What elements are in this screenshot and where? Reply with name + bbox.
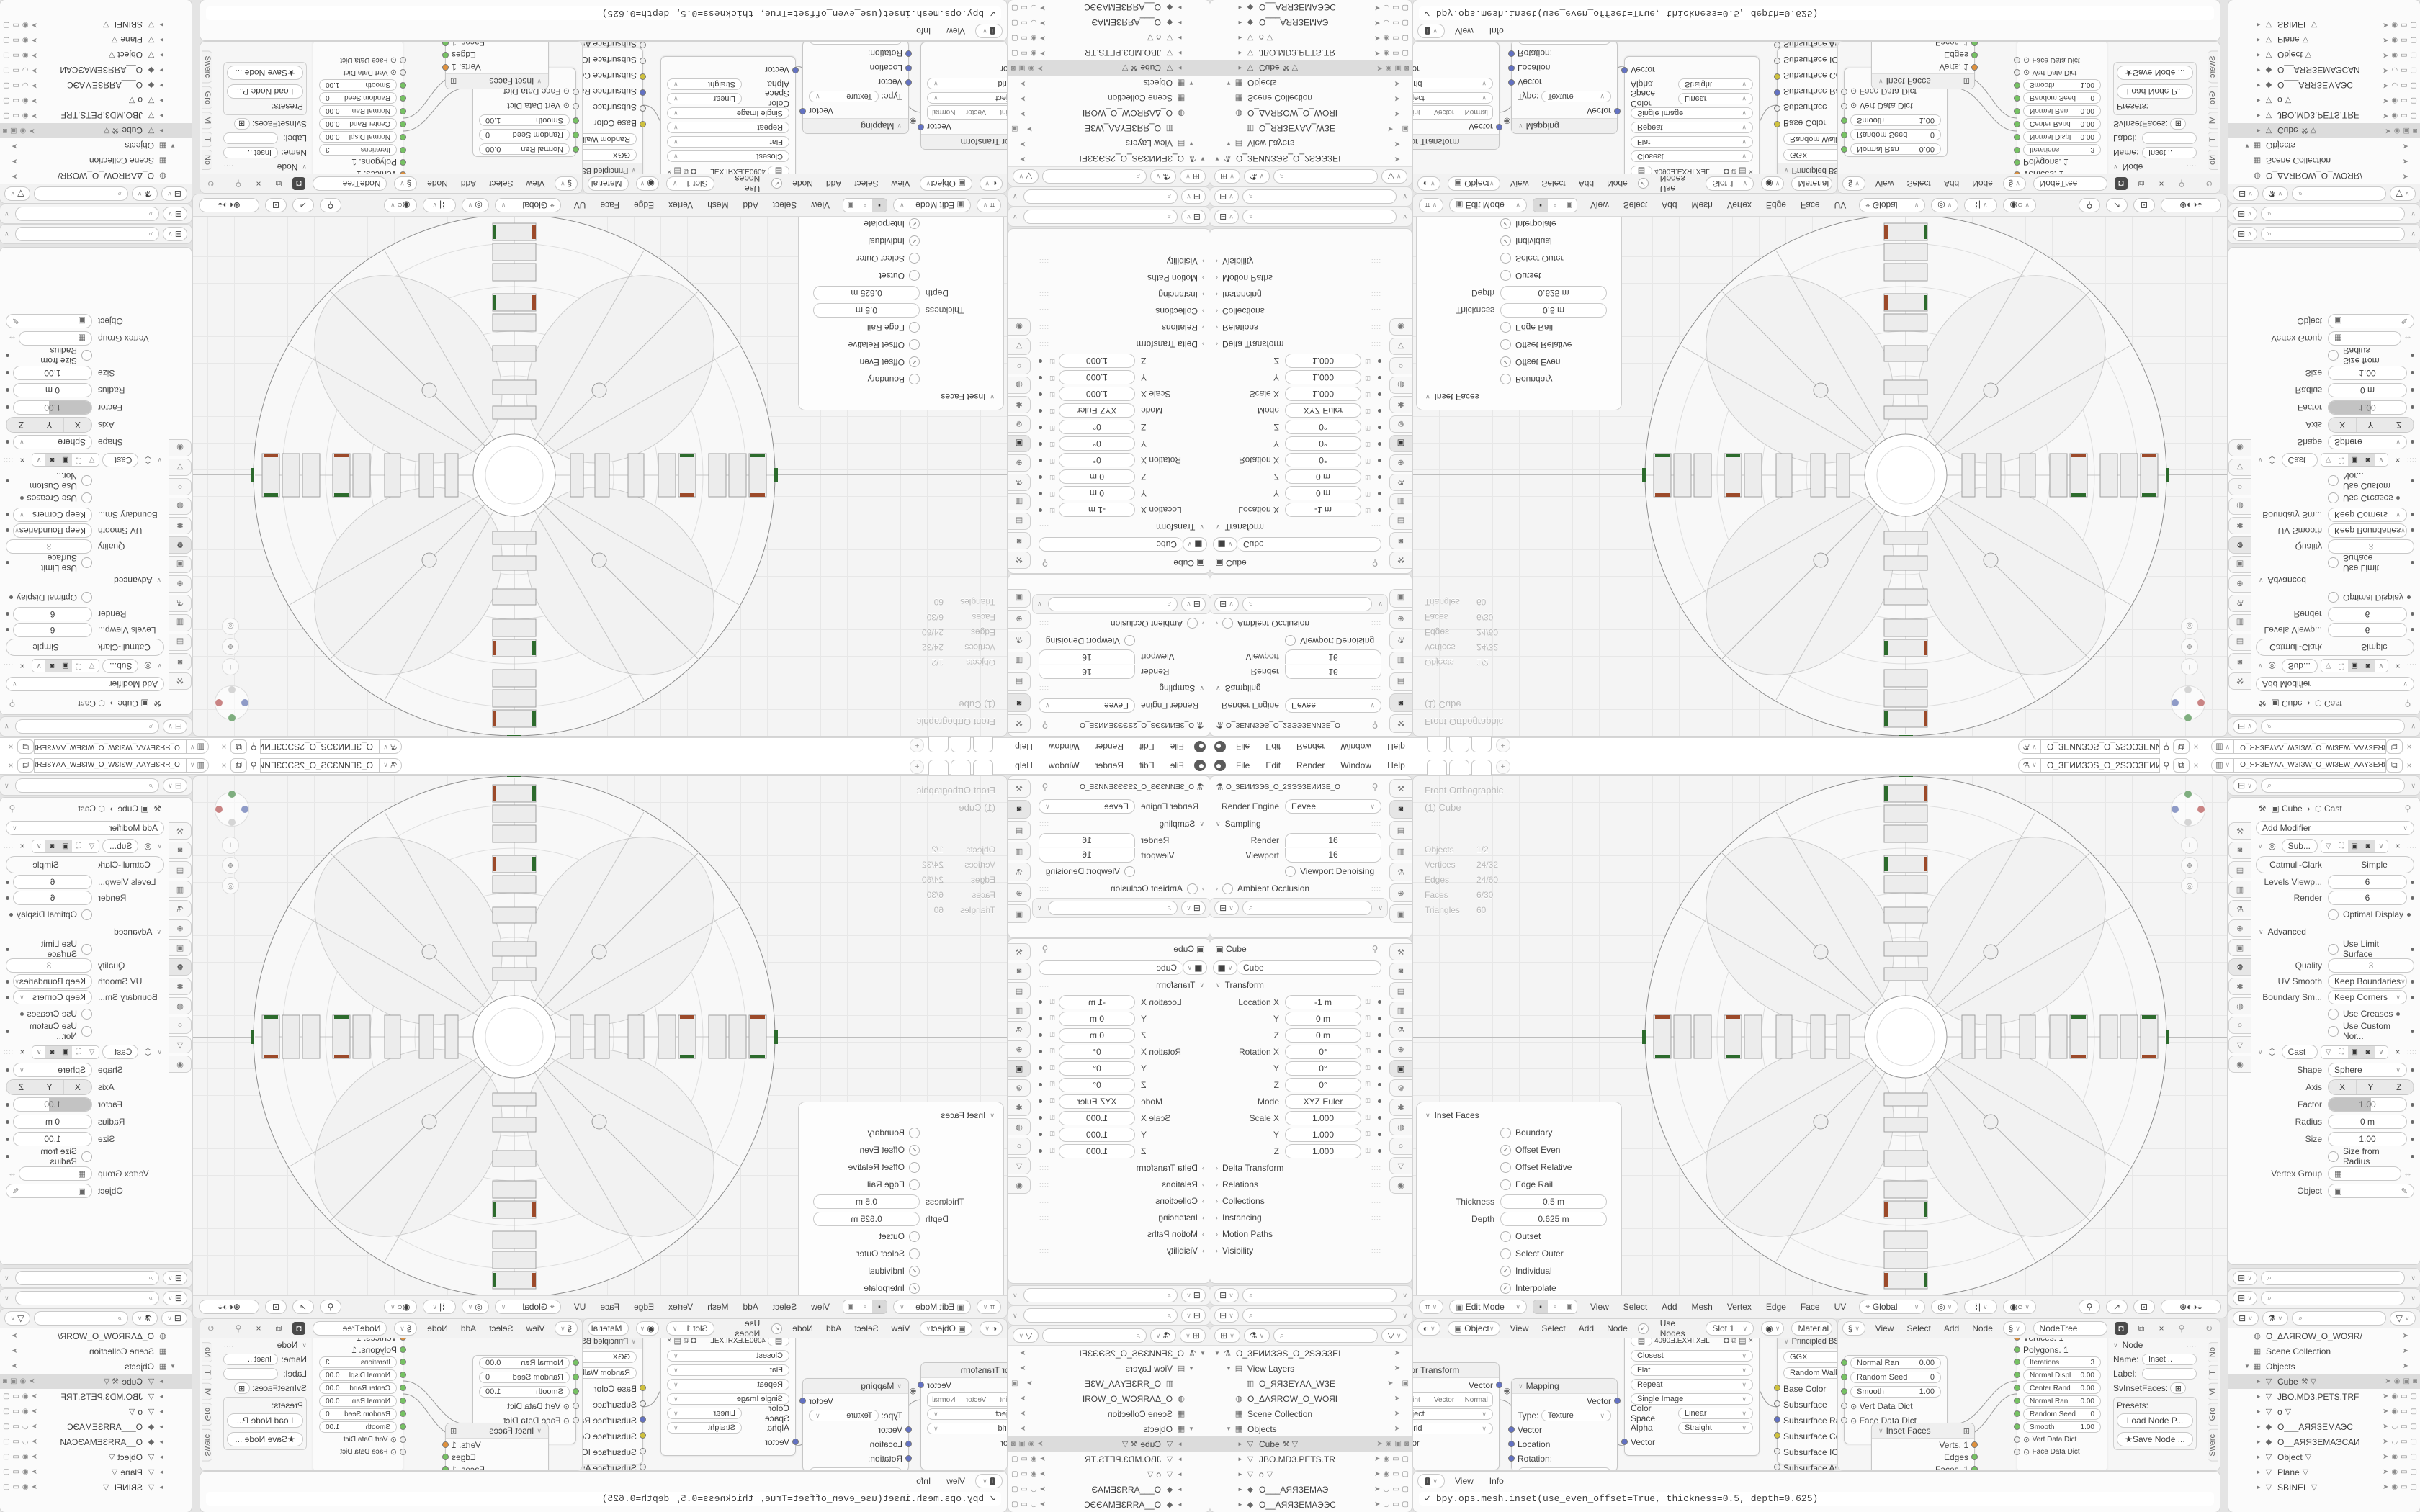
outliner-row[interactable]: ▼ ▤ View Layers ➤ bbox=[1008, 136, 1210, 151]
node-number-field[interactable]: Center Rand0.00 bbox=[319, 118, 397, 130]
topbar-menu-item[interactable]: Window bbox=[1046, 742, 1083, 752]
field-value[interactable]: 1.000 bbox=[1059, 387, 1135, 402]
animate-dot[interactable] bbox=[1039, 1116, 1042, 1120]
disable-viewport-icon[interactable]: ▭ bbox=[2401, 1423, 2407, 1431]
node-number-field[interactable]: Random Seed0 bbox=[2023, 92, 2101, 104]
outliner-row[interactable]: ► ▽ JBO.MD3.PETS.TRF ➤ ◉ ▭ ▢ bbox=[2228, 1389, 2420, 1404]
hide-eye-icon[interactable]: ◡ bbox=[2391, 66, 2398, 74]
node-tree-type-icon[interactable]: §∨ bbox=[555, 1321, 578, 1336]
field-value[interactable]: -1 m bbox=[1285, 503, 1361, 518]
animate-dot[interactable] bbox=[1378, 1000, 1381, 1004]
node-number-field[interactable]: Iterations3 bbox=[319, 1356, 397, 1368]
axis-option[interactable]: X bbox=[2329, 1080, 2357, 1094]
disable-render-icon[interactable]: ▢ bbox=[3, 1483, 9, 1491]
object-id-field[interactable]: Cube bbox=[1039, 537, 1183, 552]
select-arrow-icon[interactable]: ➤ bbox=[1020, 94, 1026, 102]
image-option-select[interactable]: Closest∨ bbox=[1631, 1350, 1753, 1362]
lock-icon[interactable]: ⚿ bbox=[1046, 1029, 1059, 1042]
disable-render-icon[interactable]: ▢ bbox=[1011, 19, 1018, 27]
outliner-row[interactable]: ▼ ⚗ O_ЗЕИИЗЭЅ_О_2ЅЭЭЗЕІ ➤ bbox=[1008, 151, 1210, 166]
hide-eye-icon[interactable]: ◉ bbox=[2391, 1468, 2398, 1476]
disable-render-icon[interactable]: ▢ bbox=[2411, 36, 2417, 44]
uv-smooth-select[interactable]: Keep Boundaries∨ bbox=[13, 974, 92, 989]
n-panel-tab[interactable]: Vi bbox=[2208, 1383, 2218, 1400]
properties-tab-icon[interactable]: ✱ bbox=[169, 978, 192, 995]
viewport-menu-item[interactable]: UV bbox=[1832, 1302, 1850, 1312]
size-from-radius-checkbox[interactable] bbox=[2328, 351, 2339, 361]
viewport-menu-item[interactable]: Edge bbox=[631, 1302, 657, 1312]
node-inset-faces[interactable]: ∨Inset Faces⊞ Verts. 1EdgesFaces. 1Face … bbox=[445, 1423, 549, 1470]
outliner-row[interactable]: ► ▽ Cube ⚒ ▽ ➤ ◉ ▣ ◙ bbox=[0, 1374, 192, 1389]
disable-render-icon[interactable]: ▢ bbox=[2411, 1392, 2417, 1400]
use-nodes-checkbox[interactable]: ✓ bbox=[1638, 1323, 1649, 1334]
select-arrow-icon[interactable]: ➤ bbox=[1394, 1349, 1400, 1357]
space-option[interactable]: Point bbox=[992, 1393, 1007, 1406]
outliner-item-label[interactable]: Object bbox=[2277, 1452, 2303, 1462]
space-option[interactable]: Point bbox=[992, 106, 1007, 119]
save-node-preset-button[interactable]: ★ Save Node ... bbox=[227, 1432, 303, 1446]
outliner-item-label[interactable]: Scene Collection bbox=[1247, 1409, 1312, 1419]
node-image-texture[interactable]: ▤ 4090Ǝ.EXЯI.XƎL ◘⧉▤× Closest∨Flat∨Repea… bbox=[1624, 1338, 1760, 1456]
disable-render-icon[interactable]: ▢ bbox=[2411, 1438, 2417, 1446]
outliner-item-label[interactable]: Plane bbox=[2277, 1467, 2300, 1477]
select-arrow-icon[interactable]: ➤ bbox=[2385, 127, 2390, 135]
select-arrow-icon[interactable]: ➤ bbox=[1020, 1425, 1026, 1433]
close-icon[interactable]: × bbox=[1749, 1338, 1753, 1345]
workspace-tab[interactable] bbox=[973, 738, 993, 753]
axis-z-dot[interactable] bbox=[2184, 791, 2192, 798]
outliner-row[interactable]: ▼ ▤ View Layers ➤ bbox=[1210, 1361, 1412, 1376]
outliner-search-input[interactable]: ⌕ bbox=[2292, 1311, 2386, 1326]
collapsed-section-row[interactable]: ›Visibility:::: bbox=[1033, 253, 1210, 270]
select-arrow-icon[interactable]: ➤ bbox=[1020, 1395, 1026, 1403]
hide-eye-icon[interactable]: ◉ bbox=[22, 21, 29, 29]
disable-viewport-icon[interactable]: ▭ bbox=[1021, 49, 1027, 57]
axis-option[interactable]: Y bbox=[2357, 1080, 2385, 1094]
properties-tab-icon[interactable]: ▽ bbox=[1008, 1157, 1031, 1174]
shader-menu-item[interactable]: Select bbox=[1538, 179, 1568, 189]
disable-render-icon[interactable]: ▢ bbox=[1402, 1500, 1409, 1508]
expand-arrow[interactable]: ► bbox=[2254, 22, 2263, 28]
delete-modifier-icon[interactable]: × bbox=[16, 840, 29, 852]
axis-option[interactable]: X bbox=[2329, 418, 2357, 432]
disable-render-icon[interactable]: ▢ bbox=[3, 51, 9, 59]
outliner-item-label[interactable]: View Layers bbox=[1126, 139, 1173, 149]
image-name-field[interactable]: 4090Ǝ.EXЯI.XƎL bbox=[1654, 168, 1722, 175]
view-layer-selector[interactable]: ▥∨ O_ЯЯЗЕYАΛ_WЗІЗW_О_WІЗЕW_ΛАYЗЕЯЯ_О ⧉ × bbox=[4, 740, 209, 755]
image-icon[interactable]: ▤ bbox=[768, 166, 789, 174]
workspace-tab[interactable] bbox=[928, 738, 949, 753]
expand-arrow[interactable]: ► bbox=[157, 1439, 166, 1445]
modifier-name-field[interactable]: Sub... bbox=[2282, 659, 2318, 673]
outliner-row[interactable]: ▥ O_ЯЯЗЕYАΛ_WЗЕ ➤ ▣ bbox=[1210, 121, 1412, 136]
show-gizmo-icon[interactable]: ⚲ bbox=[2079, 1300, 2100, 1314]
outliner-row[interactable]: ► ◆ O___АЯЯЗЕМАЭС ➤ ◡ ▭ ▢ bbox=[2228, 78, 2420, 93]
hide-eye-icon[interactable]: ◉ bbox=[1383, 34, 1389, 42]
image-option-select[interactable]: Repeat∨ bbox=[1631, 1379, 1753, 1390]
properties-tab-icon[interactable]: ▣ bbox=[1008, 904, 1031, 923]
use-limit-surface-checkbox[interactable] bbox=[81, 558, 92, 569]
node-mapping[interactable]: ∨Mapping Vector Type: Texture∨ Vector Lo… bbox=[1511, 42, 1618, 134]
grid-icon[interactable]: ⊞ bbox=[1963, 77, 1970, 86]
thickness-field[interactable]: 0.5 m bbox=[1500, 1194, 1607, 1209]
option-checkbox[interactable] bbox=[909, 271, 920, 282]
n-panel-tab[interactable]: No bbox=[2208, 1342, 2218, 1362]
convert-to-select[interactable]: World∨ bbox=[1413, 78, 1493, 89]
field-value[interactable]: 6 bbox=[13, 607, 92, 621]
expand-arrow[interactable]: ► bbox=[1236, 1441, 1245, 1447]
option-checkbox[interactable]: ✓ bbox=[1500, 219, 1511, 230]
colorspace-select[interactable]: Linear∨ bbox=[667, 1408, 742, 1419]
save-node-preset-button[interactable]: ★ Save Node ... bbox=[2117, 1432, 2193, 1446]
node-editor-menu-item[interactable]: Add bbox=[458, 1323, 479, 1333]
axis-option[interactable]: Z bbox=[6, 418, 35, 432]
hide-eye-icon[interactable]: ◉ bbox=[1386, 1440, 1392, 1448]
outliner-item-label[interactable]: O__АЯЯЗЕМАЭСАИ bbox=[60, 66, 143, 76]
outliner-item-label[interactable]: O_ΔΛЯROW_O_WОЯІ bbox=[1247, 1394, 1337, 1404]
add-workspace-button[interactable]: + bbox=[910, 739, 924, 753]
uv-smooth-select[interactable]: Keep Boundaries∨ bbox=[13, 523, 92, 538]
viewport-menu-item[interactable]: View bbox=[808, 200, 833, 210]
snapping-button[interactable]: ⌇|∨ bbox=[423, 198, 456, 212]
outliner-item-label[interactable]: O__АЯЯЗЕМАЭЭС bbox=[1084, 3, 1161, 13]
lock-icon[interactable]: ⚿ bbox=[1361, 1095, 1374, 1108]
node-editor-menu-item[interactable]: View bbox=[524, 1323, 548, 1333]
disable-viewport-icon[interactable]: ▭ bbox=[1392, 34, 1399, 42]
modifier-display-toggles[interactable]: ▽⛶▣◙∨ bbox=[32, 660, 99, 673]
search-input[interactable]: ⌕ bbox=[1023, 1288, 1178, 1302]
modifier-display-toggles[interactable]: ▽⛶▣◙∨ bbox=[2321, 1045, 2388, 1059]
node-editor-menu-item[interactable]: Select bbox=[486, 1323, 516, 1333]
outliner-row[interactable]: ► ▽ Object ▽ ➤ ◉ ▭ ▢ bbox=[0, 1449, 192, 1464]
pin-icon[interactable]: ⚲ bbox=[232, 177, 245, 190]
sampling-section[interactable]: Sampling bbox=[1159, 819, 1195, 829]
properties-tab-icon[interactable]: ▤ bbox=[1008, 513, 1031, 530]
search-input[interactable]: ⌕ bbox=[1242, 901, 1372, 915]
load-node-preset-button[interactable]: Load Node P... bbox=[227, 84, 303, 99]
add-modifier-button[interactable]: Add Modifier∨ bbox=[6, 677, 164, 691]
n-panel-tab[interactable]: T bbox=[2208, 132, 2218, 147]
grid-icon[interactable]: ⊞ bbox=[2170, 118, 2186, 130]
viewport-denoising-checkbox[interactable] bbox=[1285, 866, 1296, 877]
outliner-row[interactable]: ► ▽ Plane ▽ ➤ ◉ ▭ ▢ bbox=[0, 32, 192, 48]
expand-arrow[interactable]: ▼ bbox=[169, 1363, 177, 1369]
chevron-down-icon[interactable]: ∨ bbox=[1402, 1312, 1407, 1320]
properties-tab-icon[interactable]: ▤ bbox=[1389, 672, 1412, 691]
expand-arrow[interactable]: ► bbox=[1236, 35, 1245, 41]
editor-type-button[interactable]: ⊟∨ bbox=[1214, 597, 1239, 611]
factor-slider[interactable]: 1.00 bbox=[2328, 400, 2407, 415]
editor-type-button[interactable]: ⊟∨ bbox=[2233, 1291, 2257, 1305]
lock-icon[interactable]: ⚿ bbox=[1046, 1012, 1059, 1025]
ambient-occlusion-checkbox[interactable] bbox=[1222, 618, 1233, 629]
properties-tab-icon[interactable]: ▽ bbox=[1389, 1157, 1412, 1174]
search-input[interactable]: ⌕ bbox=[2261, 1291, 2405, 1305]
outliner-item-label[interactable]: O__АЯЯЗЕМАЭЭС bbox=[1084, 1500, 1161, 1510]
radius-field[interactable]: 0 m bbox=[13, 383, 92, 397]
node-number-field[interactable]: Smooth1.00 bbox=[319, 79, 397, 91]
axis-z-dot[interactable] bbox=[228, 791, 236, 798]
save-node-preset-button[interactable]: ★ Save Node ... bbox=[2117, 66, 2193, 80]
open-image-icon[interactable]: ▤ bbox=[1739, 1338, 1746, 1346]
n-panel-tab[interactable]: No bbox=[202, 150, 212, 170]
select-arrow-icon[interactable]: ➤ bbox=[1040, 1485, 1046, 1493]
outliner-item-label[interactable]: O__АЯЯЗЕМАЭЭС bbox=[1259, 1500, 1336, 1510]
properties-tab-icon[interactable]: ○ bbox=[1389, 1138, 1412, 1155]
mode-select[interactable]: ▣ Edit Mode∨ bbox=[1449, 198, 1527, 212]
copy-icon[interactable]: ⧉ bbox=[272, 1322, 285, 1335]
grid-icon[interactable]: ⊞ bbox=[234, 118, 250, 130]
shading-mode-toggle[interactable]: ⊕◐◑◒ bbox=[199, 198, 259, 212]
animate-dot[interactable] bbox=[1378, 475, 1381, 479]
animate-dot[interactable] bbox=[1039, 1050, 1042, 1053]
node-number-field[interactable]: Smooth1.00 bbox=[479, 114, 570, 126]
outliner-item-label[interactable]: SBINEL bbox=[2277, 20, 2308, 30]
boundary-smooth-select[interactable]: Keep Corners∨ bbox=[2328, 508, 2407, 522]
properties-tab-icon[interactable]: ⚒ bbox=[169, 672, 192, 690]
viewport-menu-item[interactable]: Vertex bbox=[1724, 1302, 1754, 1312]
chevron-down-icon[interactable]: ∨ bbox=[4, 1295, 9, 1302]
scene-selector[interactable]: ⚗∨ O_ЗЕИИЗЭЅ_О_2ЅЭЭЗЕИИ... ⚲ ⧉ × bbox=[218, 740, 402, 755]
material-slot-select[interactable]: Slot 1∨ bbox=[666, 1321, 714, 1336]
properties-tab-icon[interactable]: ⊕ bbox=[169, 575, 192, 593]
select-arrow-icon[interactable]: ➤ bbox=[12, 157, 17, 165]
disable-render-icon[interactable]: ▣ bbox=[1402, 125, 1409, 132]
tree-icon[interactable]: §∨ bbox=[2003, 176, 2026, 191]
view-layer-name-field[interactable]: O_ЯЯЗЕYАΛ_WЗІЗW_О_WІЗЕW_ΛАYЗЕЯЯ_О bbox=[2234, 758, 2386, 773]
disable-viewport-icon[interactable]: ▣ bbox=[1018, 1440, 1025, 1448]
convert-from-select[interactable]: Object∨ bbox=[927, 92, 1007, 104]
animate-dot[interactable] bbox=[1039, 1017, 1042, 1020]
animate-dot[interactable] bbox=[1039, 508, 1042, 512]
expand-arrow[interactable]: ► bbox=[1175, 35, 1184, 41]
close-icon[interactable]: × bbox=[1749, 167, 1753, 174]
expand-arrow[interactable]: ► bbox=[1175, 1456, 1184, 1462]
modifier-name-field[interactable]: Cast bbox=[2282, 453, 2318, 467]
node-mapping[interactable]: ∨Mapping Vector Type: Texture∨ Vector Lo… bbox=[802, 42, 909, 134]
object-id-field[interactable]: Cube bbox=[1237, 960, 1381, 975]
outliner-item-label[interactable]: o bbox=[2277, 96, 2282, 106]
sampling-section[interactable]: Sampling bbox=[1225, 819, 1261, 829]
outliner-item-label[interactable]: O___АЯЯЗЕМАЭС bbox=[67, 81, 143, 91]
material-icon[interactable]: ◉∨ bbox=[636, 176, 659, 191]
search-input[interactable]: ⌕ bbox=[2261, 207, 2405, 221]
shader-menu-item[interactable]: Node bbox=[789, 1323, 816, 1333]
pin-icon[interactable]: ⚲ bbox=[1039, 719, 1052, 732]
outliner-item-label[interactable]: Scene Collection bbox=[1247, 94, 1312, 104]
expand-arrow[interactable]: ► bbox=[157, 1393, 166, 1400]
node-number-field[interactable]: Smooth1.00 bbox=[2023, 79, 2101, 91]
xray-toggle-icon[interactable]: ⊡ bbox=[265, 198, 287, 212]
subdivision-type-option[interactable]: Simple bbox=[2335, 857, 2414, 873]
info-menu-item[interactable]: Info bbox=[913, 26, 933, 36]
expand-arrow[interactable]: ▼ bbox=[1187, 1426, 1196, 1432]
use-creases-checkbox[interactable] bbox=[2328, 493, 2339, 504]
hide-eye-icon[interactable]: ◡ bbox=[1031, 19, 1037, 27]
editor-type-button[interactable]: ⊟∨ bbox=[163, 227, 187, 241]
node-number-field[interactable]: Smooth1.00 bbox=[1850, 114, 1941, 126]
lock-icon[interactable]: ⚿ bbox=[1046, 1062, 1059, 1075]
vertex-group-field[interactable]: ▦ bbox=[19, 331, 92, 346]
outliner-item-label[interactable]: JBO.MD3.PETS.TRF bbox=[2277, 1392, 2359, 1402]
node-number-field[interactable]: Smooth1.00 bbox=[319, 1421, 397, 1433]
editor-type-button[interactable]: ⊟∨ bbox=[163, 1271, 187, 1285]
pivot-point-button[interactable]: ◎∨ bbox=[462, 1300, 489, 1314]
select-arrow-icon[interactable]: ➤ bbox=[32, 1423, 37, 1431]
properties-tab-icon[interactable]: ▥ bbox=[1389, 1002, 1412, 1019]
disable-render-icon[interactable]: ▢ bbox=[2411, 51, 2417, 59]
filter-funnel-button[interactable]: ▽∨ bbox=[1013, 1328, 1039, 1343]
alpha-select[interactable]: Straight∨ bbox=[1678, 78, 1753, 90]
image-option-select[interactable]: Closest∨ bbox=[667, 150, 789, 162]
editor-type-button[interactable]: ⊟∨ bbox=[163, 719, 187, 734]
lock-icon[interactable]: ⚿ bbox=[1361, 388, 1374, 401]
use-custom-normals-checkbox[interactable] bbox=[81, 476, 92, 487]
properties-tab-icon[interactable]: ◙ bbox=[1008, 693, 1031, 712]
expand-arrow[interactable]: ► bbox=[1236, 4, 1245, 11]
select-mode-toggle[interactable]: ▪▫▣ bbox=[843, 1300, 887, 1314]
info-editor-icon[interactable]: i∨ bbox=[975, 1474, 1003, 1488]
field-value[interactable]: 1.000 bbox=[1059, 354, 1135, 369]
properties-tab-icon[interactable]: ◍ bbox=[2228, 997, 2251, 1014]
modifier-header-cast[interactable]: ∨⬡ Cast ▽⛶▣◙∨ ×:::: bbox=[2253, 1043, 2420, 1061]
ambient-occlusion-checkbox[interactable] bbox=[1222, 883, 1233, 894]
proportional-editing-button[interactable]: ◉○∨ bbox=[384, 1300, 417, 1314]
size-field[interactable]: 1.00 bbox=[13, 1132, 92, 1146]
properties-tab-icon[interactable]: ◍ bbox=[2228, 498, 2251, 515]
node-vector-transform[interactable]: Vector Transform Vector PointVectorNorma… bbox=[920, 1362, 1007, 1470]
select-arrow-icon[interactable]: ➤ bbox=[1394, 1410, 1400, 1418]
disable-viewport-icon[interactable]: ▭ bbox=[2401, 1453, 2407, 1461]
ambient-occlusion-checkbox[interactable] bbox=[1187, 618, 1198, 629]
pin-icon[interactable]: ⚲ bbox=[1368, 719, 1381, 732]
select-arrow-icon[interactable]: ➤ bbox=[2383, 1392, 2388, 1400]
outliner-row[interactable]: ▼ ⚗ O_ЗЕИИЗЭЅ_О_2ЅЭЭЗЕІ ➤ bbox=[1210, 1346, 1412, 1361]
shape-select[interactable]: Sphere∨ bbox=[13, 435, 92, 449]
n-panel-tab[interactable]: Swerc bbox=[2208, 51, 2218, 84]
node-canvas[interactable]: Normal Ran0.00Random Seed0Smooth1.00 ⊙ V… bbox=[200, 1338, 582, 1470]
expand-arrow[interactable]: ► bbox=[1236, 1471, 1245, 1477]
node-inset-special[interactable]: Vertices. 1Polygons. 1 Iterations3Normal… bbox=[313, 42, 403, 174]
outliner-item-label[interactable]: Plane bbox=[120, 35, 143, 45]
properties-tab-icon[interactable]: ⚒ bbox=[2228, 672, 2251, 690]
shader-context-select[interactable]: ▣ Object∨ bbox=[1448, 176, 1500, 191]
search-input[interactable]: ⌕ bbox=[1023, 189, 1178, 204]
outliner-item-label[interactable]: o bbox=[1259, 33, 1264, 43]
modifier-header-cast[interactable]: ∨⬡ Cast ▽⛶▣◙∨ ×:::: bbox=[0, 451, 167, 469]
convert-from-select[interactable]: Object∨ bbox=[1413, 1408, 1493, 1420]
outliner-item-label[interactable]: Object bbox=[117, 1452, 143, 1462]
node-number-field[interactable]: Smooth1.00 bbox=[1850, 1386, 1941, 1398]
principled-option-select[interactable]: GGX bbox=[1783, 1351, 1837, 1363]
disable-render-icon[interactable]: ▢ bbox=[1011, 1500, 1018, 1508]
editor-type-button[interactable]: ⊟∨ bbox=[1214, 901, 1239, 915]
animate-dot[interactable] bbox=[1378, 459, 1381, 462]
pivot-point-button[interactable]: ◎∨ bbox=[462, 198, 489, 212]
collapsed-section-row[interactable]: ›Motion Paths:::: bbox=[1033, 270, 1210, 287]
use-creases-checkbox[interactable] bbox=[81, 1009, 92, 1020]
mapping-type-select[interactable]: Texture∨ bbox=[1541, 91, 1611, 102]
shader-context-select[interactable]: ▣ Object∨ bbox=[1448, 1321, 1500, 1336]
properties-tab-icon[interactable]: ◍ bbox=[169, 498, 192, 515]
select-arrow-icon[interactable]: ➤ bbox=[29, 1377, 35, 1385]
use-custom-normals-checkbox[interactable] bbox=[2328, 1026, 2339, 1037]
outliner-item-label[interactable]: Objects bbox=[2266, 141, 2295, 151]
thickness-field[interactable]: 0.5 m bbox=[1500, 303, 1607, 318]
viewport-menu-item[interactable]: View bbox=[808, 1302, 833, 1312]
node-number-field[interactable]: Normal Displ0.00 bbox=[319, 1369, 397, 1381]
node-number-field[interactable]: Random Seed0 bbox=[1850, 1372, 1941, 1383]
shader-menu-item[interactable]: View bbox=[1507, 179, 1532, 189]
use-limit-surface-checkbox[interactable] bbox=[2328, 944, 2339, 955]
display-mode-button[interactable]: ⊞∨ bbox=[1180, 1328, 1206, 1343]
select-arrow-icon[interactable]: ➤ bbox=[1040, 1455, 1046, 1463]
node-editor-menu-item[interactable]: Select bbox=[1904, 179, 1933, 189]
outliner-row[interactable]: ► ◆ O__АЯЯЗЕМАЭЭС ➤ ◡ ▭ ▢ bbox=[1008, 1497, 1210, 1512]
display-mode-button[interactable]: ⊟∨ bbox=[2233, 186, 2259, 201]
expand-arrow[interactable]: ► bbox=[1175, 1501, 1184, 1508]
disable-viewport-icon[interactable]: ▭ bbox=[1021, 1485, 1027, 1493]
delete-modifier-icon[interactable]: × bbox=[2391, 660, 2404, 672]
view-layer-icon[interactable]: ▥∨ bbox=[2211, 758, 2234, 773]
shader-type-button[interactable]: ◐∨ bbox=[980, 176, 1003, 191]
outliner-search-input[interactable]: ⌕ bbox=[34, 186, 128, 201]
select-arrow-icon[interactable]: ➤ bbox=[2383, 66, 2388, 74]
topbar-menu-item[interactable]: Edit bbox=[1137, 742, 1157, 752]
expand-arrow[interactable]: ► bbox=[1236, 1456, 1245, 1462]
animate-dot[interactable] bbox=[1378, 1099, 1381, 1103]
node-number-field[interactable]: Normal Displ0.00 bbox=[319, 131, 397, 143]
axis-dot[interactable] bbox=[228, 819, 236, 826]
properties-tab-icon[interactable]: ⚗ bbox=[1389, 474, 1412, 491]
modifier-name-field[interactable]: Cast bbox=[2282, 1045, 2318, 1059]
chevron-down-icon[interactable]: ∨ bbox=[1378, 904, 1383, 912]
properties-tab-icon[interactable]: ▽ bbox=[169, 1036, 192, 1053]
properties-tab-icon[interactable]: ◍ bbox=[1389, 1118, 1412, 1135]
node-number-field[interactable]: Center Rand0.00 bbox=[2023, 1382, 2101, 1394]
node-editor-menu-item[interactable]: Node bbox=[1969, 179, 1996, 189]
workspace-tab[interactable] bbox=[951, 760, 971, 775]
select-arrow-icon[interactable]: ➤ bbox=[1037, 64, 1043, 72]
lock-icon[interactable]: ⚿ bbox=[1046, 421, 1059, 434]
hide-eye-icon[interactable]: ◉ bbox=[1383, 1455, 1389, 1463]
option-checkbox[interactable] bbox=[909, 340, 920, 351]
collapsed-section-row[interactable]: ›Visibility:::: bbox=[1210, 253, 1387, 270]
properties-tab-icon[interactable]: ▣ bbox=[2228, 556, 2251, 573]
properties-tab-icon[interactable]: ✱ bbox=[2228, 517, 2251, 534]
properties-tab-icon[interactable]: ▣ bbox=[169, 939, 192, 956]
xray-toggle-icon[interactable]: ⊡ bbox=[265, 1300, 287, 1314]
expand-arrow[interactable]: ▼ bbox=[1187, 140, 1196, 147]
lock-icon[interactable]: ⚿ bbox=[1361, 421, 1374, 434]
option-checkbox[interactable] bbox=[909, 323, 920, 333]
outliner-item-label[interactable]: O_ЗЕИИЗЭЅ_О_2ЅЭЭЗЕІ bbox=[1236, 1349, 1340, 1359]
image-icon[interactable]: ▤ bbox=[1631, 166, 1652, 174]
load-node-preset-button[interactable]: Load Node P... bbox=[227, 1413, 303, 1428]
properties-tab-icon[interactable]: ▥ bbox=[1389, 842, 1412, 860]
hide-eye-icon[interactable]: ◡ bbox=[1031, 1500, 1037, 1508]
node-number-field[interactable]: Random Seed0 bbox=[479, 129, 570, 140]
workspace-tab[interactable] bbox=[1449, 760, 1469, 775]
pivot-point-button[interactable]: ◎∨ bbox=[1931, 1300, 1958, 1314]
expand-arrow[interactable]: ► bbox=[1175, 1486, 1184, 1493]
outliner-row[interactable]: ► ◆ O__АЯЯЗЕМАЭЭС ➤ ◡ ▭ ▢ bbox=[1210, 1497, 1412, 1512]
move-view-button[interactable]: ✥ bbox=[2181, 857, 2198, 874]
editor-type-button[interactable]: ⊟∨ bbox=[2233, 1271, 2257, 1285]
fake-user-shield-icon[interactable]: ◘ bbox=[2115, 177, 2128, 190]
node-number-field[interactable]: Random Seed0 bbox=[319, 1408, 397, 1420]
option-checkbox[interactable] bbox=[909, 1179, 920, 1190]
